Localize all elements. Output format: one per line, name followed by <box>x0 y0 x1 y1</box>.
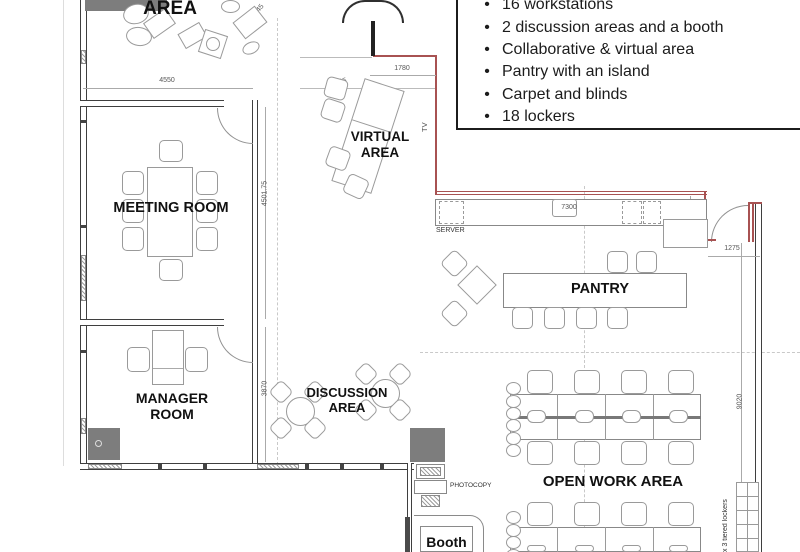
counter-cabinet <box>622 201 642 224</box>
wall-tick <box>340 464 344 470</box>
chair <box>527 502 553 526</box>
list-item: •Pantry with an island <box>458 61 792 83</box>
photocopier-tray <box>420 467 441 476</box>
planter-screen <box>506 444 521 457</box>
bullet-icon: • <box>472 0 502 14</box>
dim-right-height: 9020 <box>737 390 744 414</box>
chair <box>185 347 208 372</box>
bullet-icon: • <box>472 108 502 126</box>
chair <box>574 370 600 394</box>
monitor-mount <box>575 410 594 423</box>
lockers-divider <box>747 482 748 552</box>
wall-left <box>80 0 87 470</box>
chair <box>621 502 647 526</box>
wall-tick <box>380 464 384 470</box>
chair <box>621 441 647 465</box>
chair <box>196 227 218 251</box>
photocopier-tray <box>421 495 440 507</box>
monitor-mount <box>669 545 688 552</box>
monitor-mount <box>622 410 641 423</box>
note-text: Collaborative & virtual area <box>502 41 694 59</box>
chair <box>440 299 470 329</box>
dim-line <box>83 88 253 89</box>
list-item: •Collaborative & virtual area <box>458 39 792 61</box>
wall-tick <box>80 350 87 353</box>
dim-line <box>265 107 266 319</box>
boundary-line <box>435 55 437 195</box>
wall-hatch <box>81 418 86 434</box>
monitor-mount <box>669 410 688 423</box>
wall-post <box>405 517 410 552</box>
note-text: 16 workstations <box>502 0 613 14</box>
note-text: Pantry with an island <box>502 63 650 81</box>
list-item: •18 lockers <box>458 106 792 128</box>
monitor-mount <box>622 545 641 552</box>
chair <box>544 307 565 329</box>
photocopier <box>414 480 447 494</box>
diamond-table <box>457 265 497 305</box>
manager-cabinet <box>88 428 120 460</box>
monitor-mount <box>575 545 594 552</box>
wall-hatch <box>88 464 122 469</box>
counter-cabinet <box>643 201 661 224</box>
bench-divider <box>557 527 558 552</box>
office-floor-plan: 4550 1780 4905 4045 4501.75 3870 1145 12… <box>0 0 800 552</box>
bullet-icon: • <box>472 19 502 37</box>
dim-virtual-width: 1780 <box>382 65 422 72</box>
collab-area-label: AREA <box>130 0 210 20</box>
dim-counter-length: 7300 <box>554 204 584 211</box>
pantry-label: PANTRY <box>560 281 640 298</box>
manager-room-label: MANAGER ROOM <box>132 390 212 422</box>
wall-bottom <box>80 463 414 470</box>
note-text: Carpet and blinds <box>502 86 627 104</box>
cabinet-knob <box>95 440 102 447</box>
chair <box>607 251 628 273</box>
monitor-mount <box>527 545 546 552</box>
entry-door-arc <box>711 205 748 242</box>
wall-hatch <box>257 464 299 469</box>
wall-tick <box>203 464 207 470</box>
open-work-area-label: OPEN WORK AREA <box>540 473 686 490</box>
chair <box>440 249 470 279</box>
centerline-vertical-right <box>584 186 585 552</box>
chair <box>527 370 553 394</box>
chair <box>159 140 183 162</box>
list-item: •Carpet and blinds <box>458 84 792 106</box>
monitor-mount <box>527 410 546 423</box>
dim-manager-height: 3870 <box>262 374 269 404</box>
chair <box>668 441 694 465</box>
chair <box>668 502 694 526</box>
server-label: SERVER <box>436 227 465 234</box>
wall-meeting-bottom <box>80 319 224 326</box>
dim-entry-width: 1275 <box>710 245 754 252</box>
stool <box>221 0 240 13</box>
entry-door-leaf <box>752 204 754 242</box>
bench-divider <box>653 527 654 552</box>
bench-divider <box>605 527 606 552</box>
lockers-note: x 3 tiered lockers <box>722 486 729 552</box>
entry-door-leaf <box>748 204 750 242</box>
chair <box>636 251 657 273</box>
wall-tick <box>305 464 309 470</box>
planter-screen <box>506 419 521 432</box>
manager-desk <box>152 330 184 385</box>
counter-return <box>663 219 708 248</box>
chair <box>122 227 144 251</box>
dome-pod-stem <box>371 21 375 56</box>
centerline-horizontal <box>420 352 800 353</box>
chair <box>512 307 533 329</box>
dim-line <box>370 75 436 76</box>
stool <box>240 39 261 57</box>
wall-tick <box>158 464 162 470</box>
planter-screen <box>506 511 521 524</box>
bullet-icon: • <box>472 86 502 104</box>
list-item: •16 workstations <box>458 0 792 16</box>
chair <box>127 347 150 372</box>
chair <box>668 370 694 394</box>
photocopy-label: PHOTOCOPY <box>450 482 491 489</box>
list-item: •2 discussion areas and a booth <box>458 16 792 38</box>
chair <box>574 441 600 465</box>
note-text: 2 discussion areas and a booth <box>502 19 723 37</box>
dome-pod <box>342 0 404 23</box>
wall-hatch <box>81 255 86 301</box>
chair <box>319 97 346 124</box>
note-text: 18 lockers <box>502 108 575 126</box>
chair <box>607 307 628 329</box>
planter-screen <box>506 536 521 549</box>
extension-line <box>63 0 64 466</box>
discussion-area-label: DISCUSSION AREA <box>304 386 390 416</box>
chair <box>122 171 144 195</box>
wall-tick <box>80 120 87 123</box>
meeting-room-door-arc <box>217 108 253 144</box>
notes-list: •16 workstations •2 discussion areas and… <box>458 0 800 128</box>
counter-cabinet <box>439 201 464 224</box>
chair <box>527 441 553 465</box>
chair <box>621 370 647 394</box>
chair <box>159 259 183 281</box>
manager-room-door-arc <box>217 327 253 363</box>
chair <box>574 502 600 526</box>
tv-label: TV <box>420 114 429 132</box>
desk-divider <box>153 368 183 369</box>
wall-interior-vertical <box>252 100 258 466</box>
wall-meeting-top <box>80 100 224 107</box>
copier-cabinet <box>410 428 445 462</box>
dim-top-width: 4550 <box>142 77 192 84</box>
planter-screen <box>506 382 521 395</box>
bullet-icon: • <box>472 41 502 59</box>
chair <box>196 171 218 195</box>
helper-line <box>300 57 372 58</box>
wall-hatch <box>81 50 86 64</box>
booth-label: Booth <box>420 534 473 550</box>
wall-tick <box>80 225 87 228</box>
swivel-chair-seat <box>206 37 220 51</box>
dim-line <box>708 256 760 257</box>
boundary-line <box>373 55 437 57</box>
notes-box: •16 workstations •2 discussion areas and… <box>456 0 800 130</box>
dim-meeting-height: 4501.75 <box>262 177 269 211</box>
bullet-icon: • <box>472 63 502 81</box>
chair <box>576 307 597 329</box>
boundary-line <box>748 202 762 204</box>
virtual-area-label: VIRTUAL AREA <box>340 129 420 160</box>
meeting-room-label: MEETING ROOM <box>106 200 236 217</box>
boundary-line <box>435 191 707 195</box>
